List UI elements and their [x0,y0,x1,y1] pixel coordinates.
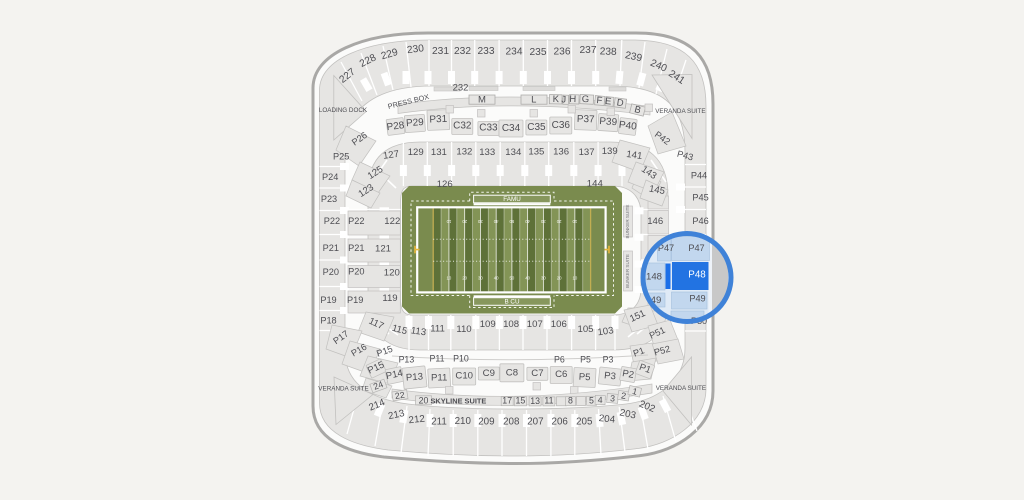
svg-text:P37: P37 [577,114,596,126]
svg-text:238: 238 [600,46,618,58]
svg-text:232: 232 [454,46,471,57]
svg-text:C33: C33 [479,123,498,134]
svg-text:G: G [581,94,589,105]
svg-text:P5: P5 [578,372,590,384]
svg-text:P19: P19 [320,295,336,305]
svg-text:3: 3 [610,393,616,403]
svg-text:127: 127 [382,149,399,162]
svg-text:204: 204 [598,413,616,426]
svg-text:P39: P39 [599,116,618,128]
svg-text:209: 209 [478,416,494,427]
svg-text:30: 30 [477,219,482,224]
svg-text:235: 235 [530,47,547,58]
svg-text:233: 233 [478,46,495,57]
svg-text:C8: C8 [506,368,518,379]
svg-text:131: 131 [431,147,447,158]
svg-text:111: 111 [430,324,445,335]
svg-text:F: F [596,95,603,106]
svg-text:232: 232 [453,83,469,94]
svg-text:P25: P25 [333,152,349,162]
svg-text:4: 4 [598,395,603,405]
svg-text:H: H [569,94,576,105]
svg-text:133: 133 [479,147,495,158]
svg-text:P3: P3 [604,370,617,382]
svg-text:10: 10 [447,275,452,280]
svg-text:C36: C36 [552,120,571,131]
svg-text:135: 135 [528,147,544,158]
svg-text:C6: C6 [555,369,567,380]
svg-text:108: 108 [503,319,519,330]
svg-text:20: 20 [462,219,467,224]
svg-text:P44: P44 [691,170,707,180]
svg-text:P19: P19 [347,295,363,305]
svg-text:146: 146 [647,216,663,227]
svg-text:40: 40 [493,219,498,224]
svg-text:P11: P11 [431,373,447,384]
svg-text:K: K [553,94,560,105]
svg-text:126: 126 [437,179,453,190]
svg-text:P13: P13 [406,371,424,383]
svg-text:E: E [604,96,611,108]
svg-text:132: 132 [456,147,472,158]
svg-text:M: M [478,94,486,105]
svg-text:119: 119 [382,293,397,304]
svg-text:P20: P20 [348,267,364,277]
svg-text:BUNKER SUITE: BUNKER SUITE [625,205,630,239]
svg-text:40: 40 [525,275,530,280]
svg-text:208: 208 [503,416,520,427]
svg-text:110: 110 [456,324,471,335]
svg-text:SKYLINE SUITE: SKYLINE SUITE [430,396,486,405]
svg-text:17: 17 [502,396,512,406]
svg-text:C7: C7 [531,368,543,379]
svg-text:212: 212 [408,414,425,427]
svg-text:P48: P48 [688,269,706,280]
svg-text:P31: P31 [429,114,448,126]
svg-text:136: 136 [553,147,569,158]
svg-text:144: 144 [587,179,604,190]
svg-text:137: 137 [579,147,595,158]
svg-text:234: 234 [506,47,523,58]
svg-text:122: 122 [384,216,400,227]
svg-text:105: 105 [577,324,593,335]
svg-text:20: 20 [557,275,562,280]
svg-text:237: 237 [580,45,597,56]
svg-text:231: 231 [432,46,449,57]
svg-text:C32: C32 [453,121,472,132]
svg-text:30: 30 [541,275,546,280]
svg-text:207: 207 [527,416,543,427]
svg-text:134: 134 [505,147,522,158]
svg-text:P29: P29 [406,117,425,129]
svg-text:103: 103 [597,325,614,338]
svg-text:107: 107 [527,319,543,330]
svg-text:P13: P13 [399,354,415,364]
svg-text:148: 148 [646,271,662,282]
svg-text:P21: P21 [323,243,339,253]
svg-text:129: 129 [408,147,424,158]
svg-text:C34: C34 [502,123,521,134]
svg-text:P5: P5 [580,355,591,365]
svg-text:141: 141 [626,149,643,162]
svg-text:10: 10 [572,219,577,224]
svg-text:C10: C10 [455,371,473,382]
svg-text:210: 210 [455,416,472,427]
svg-text:C9: C9 [483,368,495,379]
svg-text:P22: P22 [348,216,364,226]
svg-text:P46: P46 [692,216,708,226]
svg-text:50: 50 [509,219,514,224]
svg-text:P49: P49 [689,294,705,304]
svg-text:40: 40 [525,219,530,224]
svg-text:121: 121 [375,244,391,255]
svg-text:P10: P10 [453,354,469,364]
svg-text:30: 30 [540,219,545,224]
svg-text:211: 211 [431,416,447,427]
svg-text:VERANDA SUITE: VERANDA SUITE [318,386,368,393]
svg-text:20: 20 [556,219,561,224]
svg-text:P28: P28 [386,120,405,133]
svg-text:P22: P22 [324,216,340,226]
svg-text:P40: P40 [618,120,637,133]
svg-text:J: J [561,94,566,105]
svg-text:109: 109 [480,319,496,330]
svg-text:30: 30 [478,275,483,280]
svg-text:15: 15 [516,396,526,406]
svg-text:10: 10 [572,275,577,280]
svg-text:P3: P3 [603,355,614,365]
svg-text:20: 20 [462,275,467,280]
svg-text:40: 40 [494,275,499,280]
svg-text:120: 120 [384,267,400,278]
svg-text:22: 22 [394,390,405,401]
svg-text:13: 13 [530,396,540,406]
svg-text:P21: P21 [348,243,364,253]
svg-text:LOADING DOCK: LOADING DOCK [319,107,368,114]
svg-text:VERANDA SUITE: VERANDA SUITE [656,385,706,392]
svg-text:230: 230 [406,43,425,56]
svg-text:P18: P18 [320,315,336,325]
svg-text:205: 205 [576,416,593,427]
svg-text:P2: P2 [621,368,634,381]
svg-text:106: 106 [551,319,567,330]
svg-text:C35: C35 [527,122,546,133]
svg-text:11: 11 [544,396,553,406]
svg-text:139: 139 [602,146,618,157]
svg-text:P47: P47 [688,243,704,253]
svg-text:P6: P6 [554,355,565,365]
svg-text:10: 10 [446,219,451,224]
svg-text:BUNKER SUITE: BUNKER SUITE [625,254,630,288]
svg-text:50: 50 [510,275,515,280]
svg-text:P20: P20 [323,267,339,277]
svg-text:5: 5 [589,395,594,405]
svg-text:8: 8 [568,396,573,406]
svg-text:FAMU: FAMU [503,196,521,203]
svg-text:20: 20 [419,395,429,405]
svg-text:206: 206 [552,416,569,427]
svg-text:236: 236 [554,47,571,58]
svg-text:113: 113 [410,325,427,338]
svg-text:L: L [531,94,536,105]
svg-text:P23: P23 [321,194,337,204]
svg-text:B CU: B CU [504,299,519,306]
svg-text:P45: P45 [692,193,708,203]
svg-text:P24: P24 [322,172,338,182]
svg-text:P11: P11 [430,354,445,364]
svg-text:VERANDA SUITE: VERANDA SUITE [655,108,705,115]
